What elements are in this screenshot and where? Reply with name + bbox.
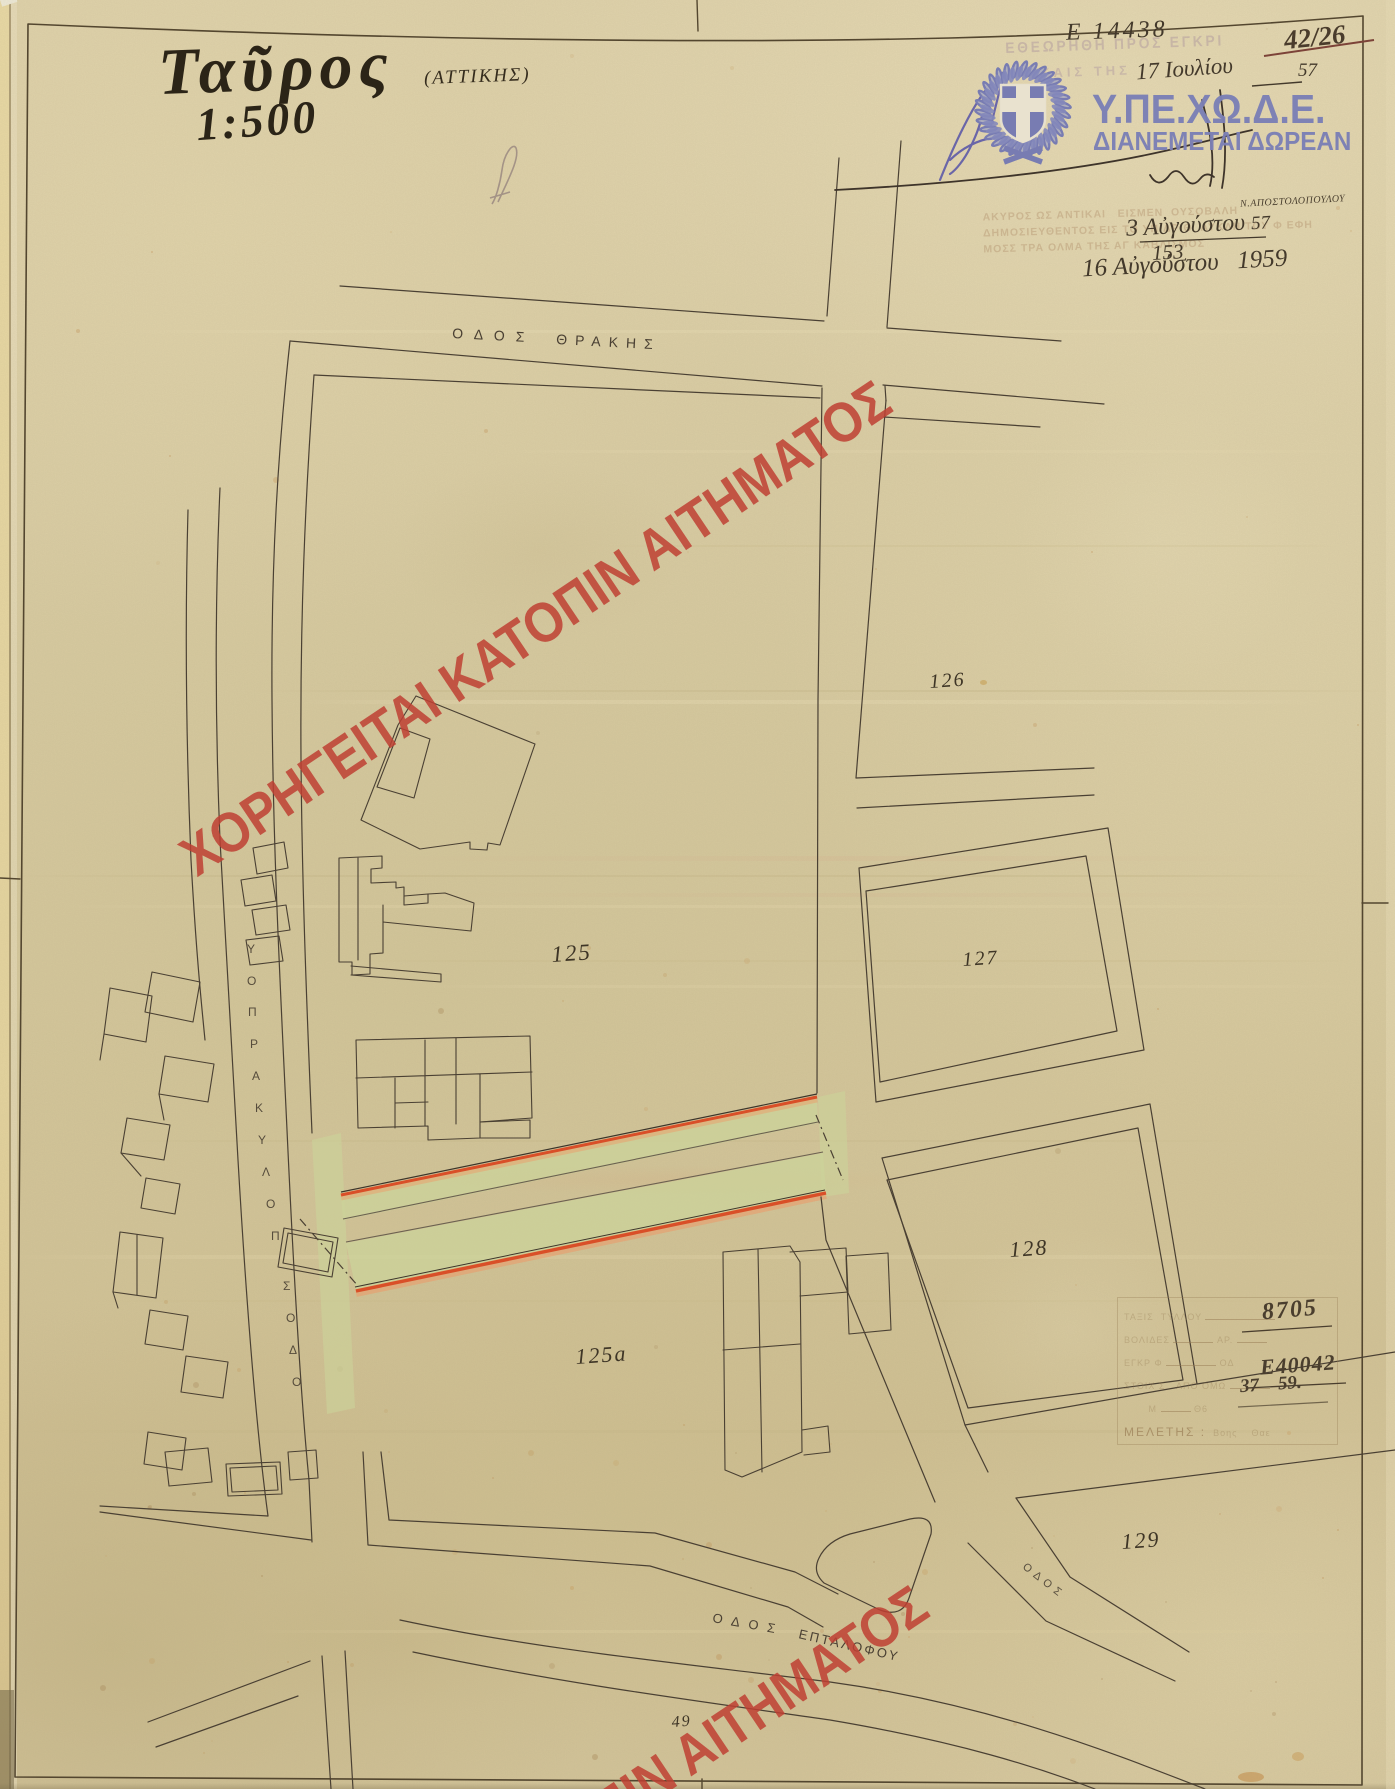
svg-text:Λ: Λ [262, 1165, 270, 1179]
svg-text:Ο: Ο [266, 1197, 275, 1211]
svg-text:Δ: Δ [289, 1343, 297, 1357]
svg-text:Π: Π [271, 1229, 280, 1243]
svg-text:Ο: Ο [247, 974, 256, 988]
svg-text:ΟΔΟΣ: ΟΔΟΣ [1020, 1561, 1067, 1602]
svg-text:Κ: Κ [255, 1101, 263, 1115]
svg-text:Υ: Υ [258, 1133, 266, 1147]
svg-text:Π: Π [248, 1005, 257, 1019]
svg-text:126: 126 [929, 669, 966, 693]
svg-text:Ο: Ο [292, 1375, 301, 1389]
svg-text:125: 125 [551, 939, 593, 967]
svg-text:128: 128 [1009, 1234, 1050, 1262]
svg-text:Α: Α [252, 1069, 260, 1083]
svg-text:Ο: Ο [286, 1311, 295, 1325]
svg-text:ΘΡΑΚΗΣ: ΘΡΑΚΗΣ [556, 331, 661, 352]
svg-text:Υ: Υ [247, 942, 255, 956]
svg-text:Ρ: Ρ [250, 1037, 258, 1051]
svg-text:125a: 125a [575, 1340, 629, 1369]
svg-text:Σ: Σ [283, 1279, 290, 1293]
svg-text:ΟΔΟΣ: ΟΔΟΣ [452, 325, 536, 345]
svg-text:129: 129 [1121, 1526, 1162, 1554]
svg-text:ΟΔΟΣ: ΟΔΟΣ [711, 1610, 785, 1637]
svg-text:127: 127 [962, 947, 999, 971]
